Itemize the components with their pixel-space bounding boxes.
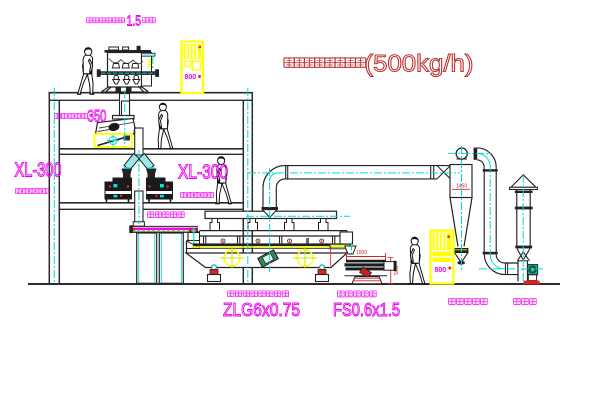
svg-text:1.5: 1.5 xyxy=(127,13,142,30)
svg-text:XL-300: XL-300 xyxy=(178,162,228,184)
svg-text:FS0.6x1.5: FS0.6x1.5 xyxy=(333,300,400,320)
svg-text:1500: 1500 xyxy=(356,250,367,256)
svg-text:350: 350 xyxy=(88,107,107,126)
svg-text:800: 800 xyxy=(435,267,447,274)
svg-text:(500kg/h): (500kg/h) xyxy=(365,51,474,78)
svg-text:ZLG6x0.75: ZLG6x0.75 xyxy=(223,300,300,320)
svg-text:800: 800 xyxy=(185,74,197,81)
